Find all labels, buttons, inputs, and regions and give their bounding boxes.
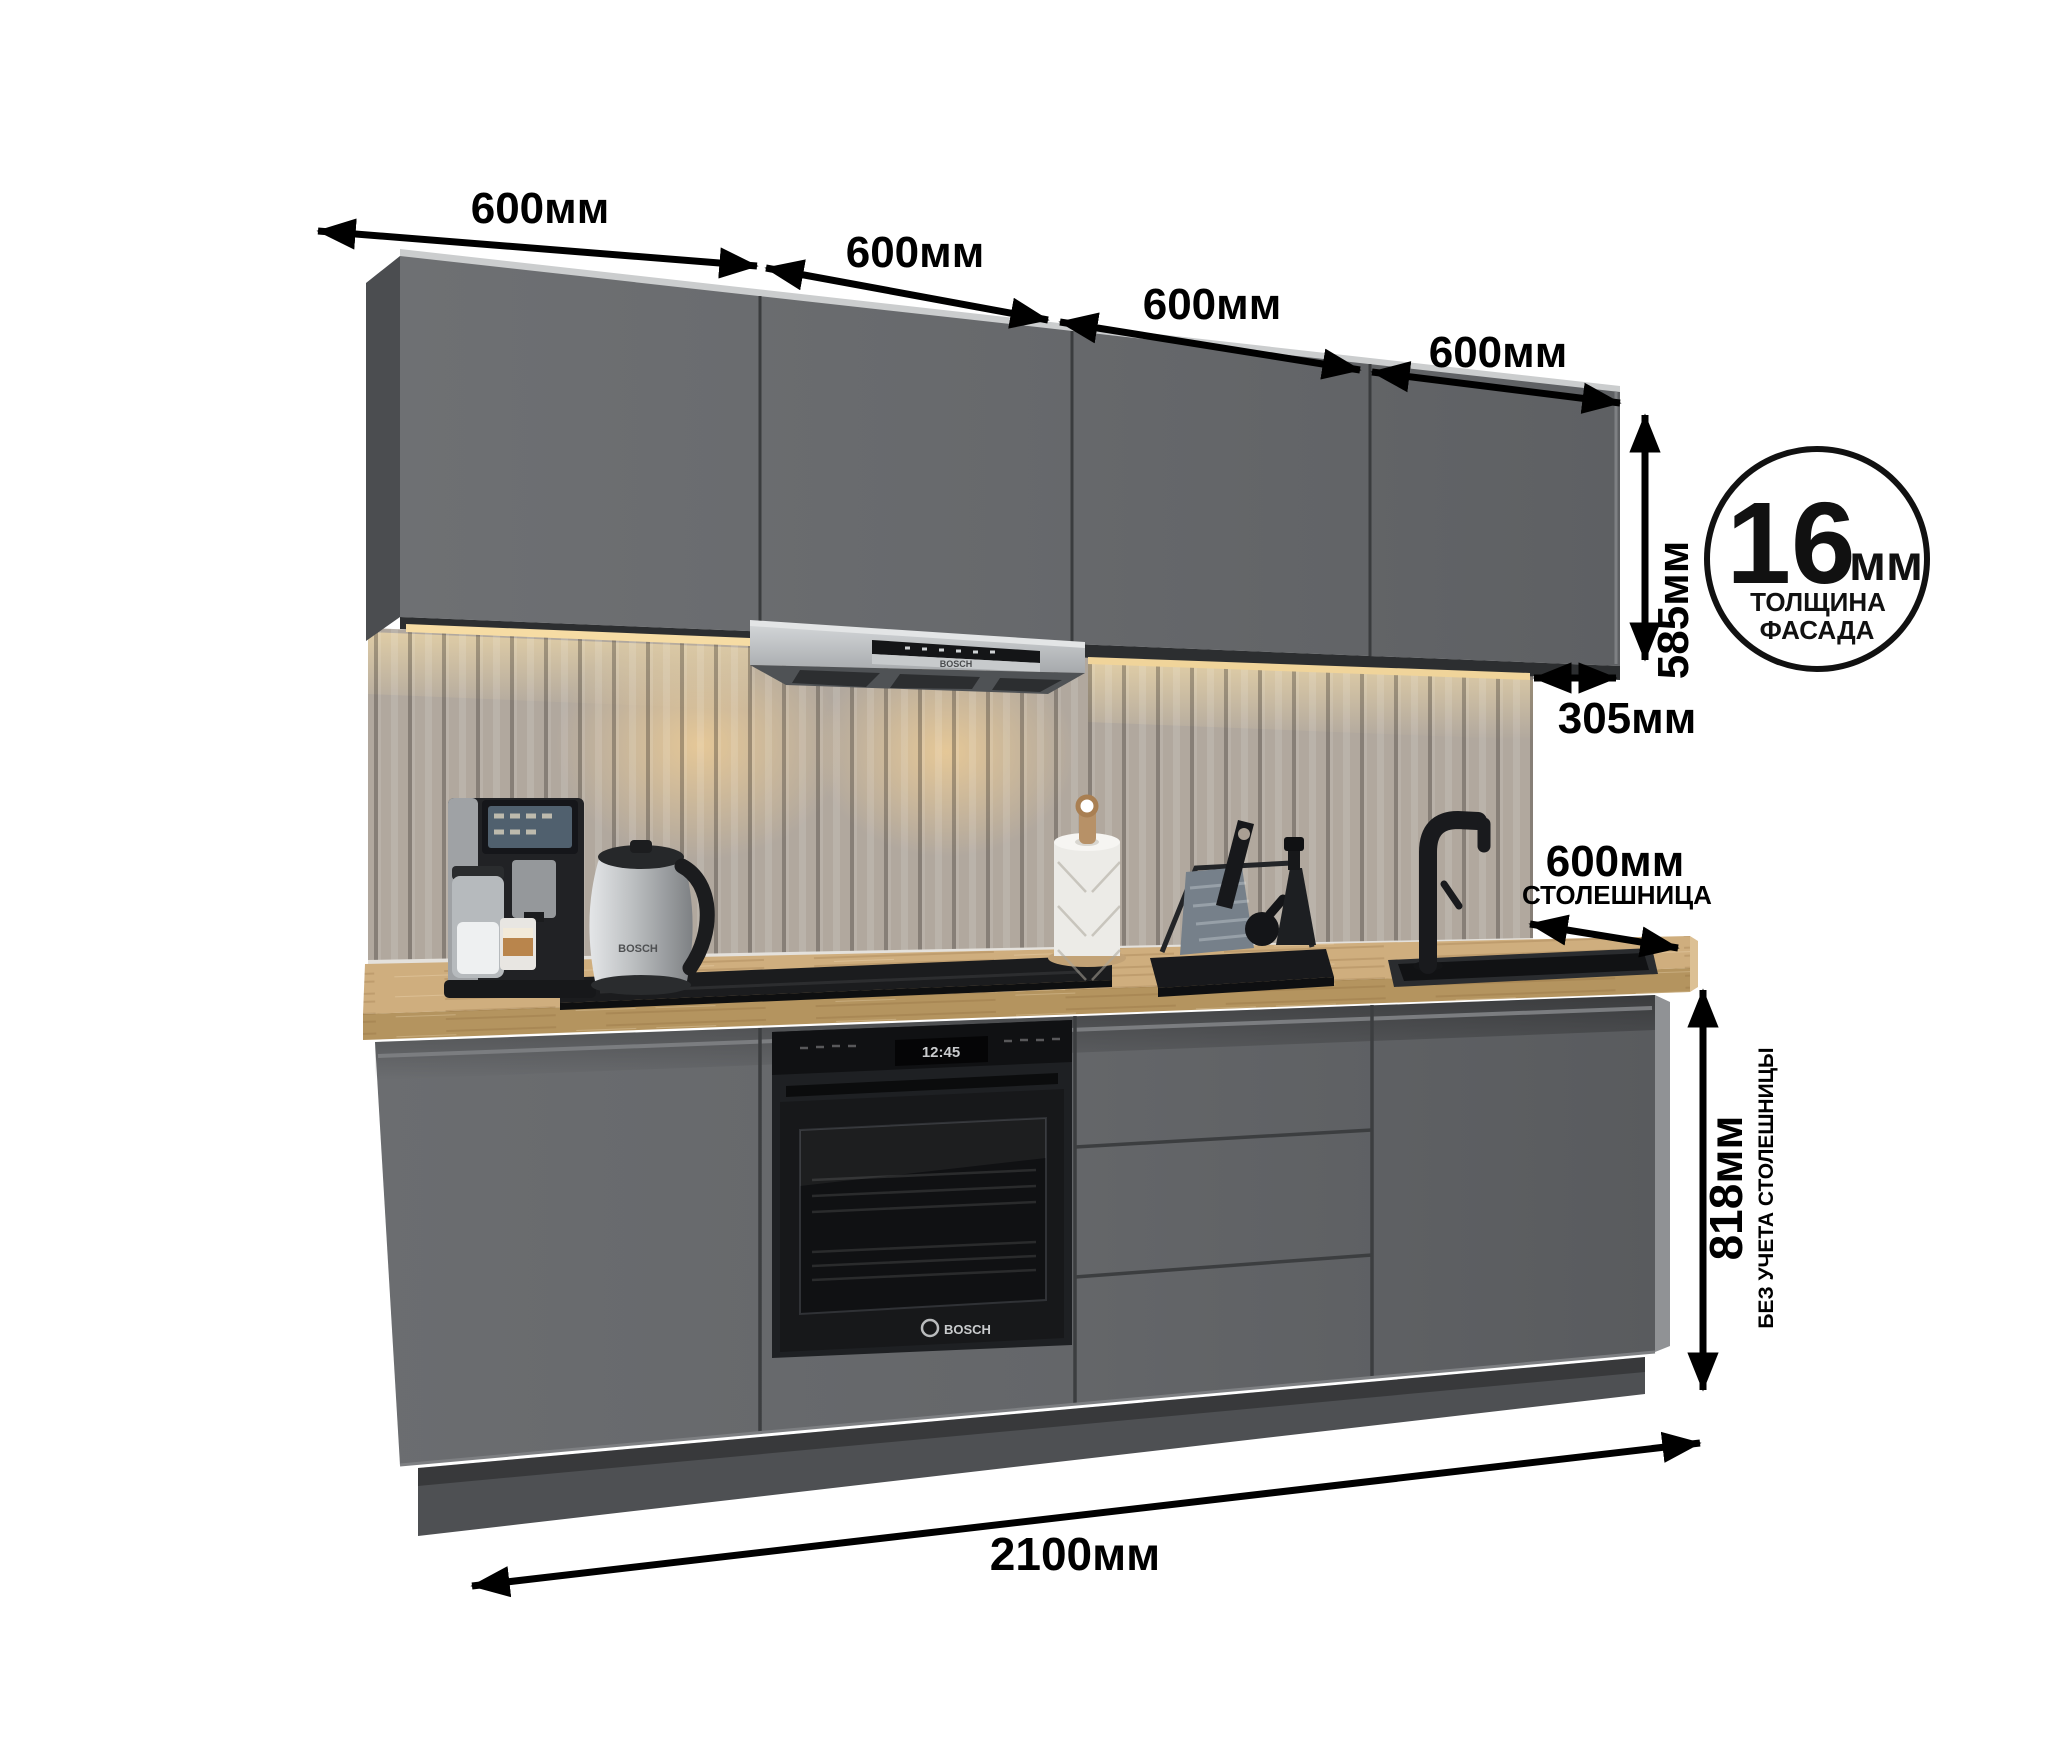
dish-towel [1180, 867, 1254, 955]
oven-brand-label: BOSCH [944, 1322, 991, 1337]
soap-dispenser-cap [1284, 837, 1304, 851]
dimension-label-countertop: 600мм [1546, 837, 1685, 886]
dimension-label-width-4: 600мм [1429, 328, 1568, 377]
kettle: BOSCH [589, 840, 707, 995]
dimension-label-width-1: 600мм [471, 184, 610, 233]
dimension-label-upper-depth: 305мм [1558, 694, 1697, 743]
wall-cabinet-left-side [366, 256, 400, 641]
drip-tray [444, 980, 596, 998]
dimension-sublabel-base-height: БЕЗ УЧЕТА СТОЛЕШНИЦЫ [1755, 1047, 1778, 1328]
hood-brand-label: BOSCH [940, 659, 973, 669]
product-dimension-diagram: BOSCH 12:45 [0, 0, 2048, 1757]
coffee-machine [444, 798, 596, 998]
countertop-right-end [1690, 936, 1698, 992]
oven: 12:45 BOSCH [772, 1020, 1072, 1358]
paper-towel-roll [1054, 842, 1120, 956]
wall-cabinets [366, 249, 1620, 680]
facade-thickness-badge: 16 мм ТОЛЩИНА ФАСАДА [1707, 449, 1927, 669]
badge-caption-2: ФАСАДА [1760, 615, 1875, 645]
badge-unit: мм [1849, 535, 1923, 591]
brew-group [512, 860, 556, 918]
spatula-hole [1238, 828, 1250, 840]
soap-dispenser-neck [1288, 848, 1300, 870]
dimension-label-upper-height: 585мм [1649, 541, 1698, 680]
kettle-brand-label: BOSCH [618, 943, 658, 955]
base-cabinet-right-side [1655, 995, 1670, 1352]
coffee-machine-screen [488, 806, 572, 848]
kettle-lid-knob [630, 840, 652, 853]
dimension-label-width-2: 600мм [846, 228, 985, 277]
dish-brush [1245, 912, 1279, 946]
latte-foam-layer [503, 928, 533, 938]
latte-coffee-layer [503, 938, 533, 956]
kitchen-scene: BOSCH 12:45 [0, 0, 2048, 1757]
dimension-label-base-height: 818мм [1700, 1116, 1752, 1261]
badge-caption-1: ТОЛЩИНА [1750, 587, 1886, 617]
dimension-sublabel-countertop: СТОЛЕШНИЦА [1522, 880, 1712, 910]
dimension-label-total-width: 2100мм [990, 1528, 1160, 1580]
dimension-label-width-3: 600мм [1143, 280, 1282, 329]
oven-clock: 12:45 [922, 1044, 960, 1061]
towel-holder-ring [1078, 797, 1096, 815]
milk-level [457, 922, 499, 974]
kettle-base [591, 975, 691, 995]
dimension-arrow-width-1 [318, 231, 757, 266]
